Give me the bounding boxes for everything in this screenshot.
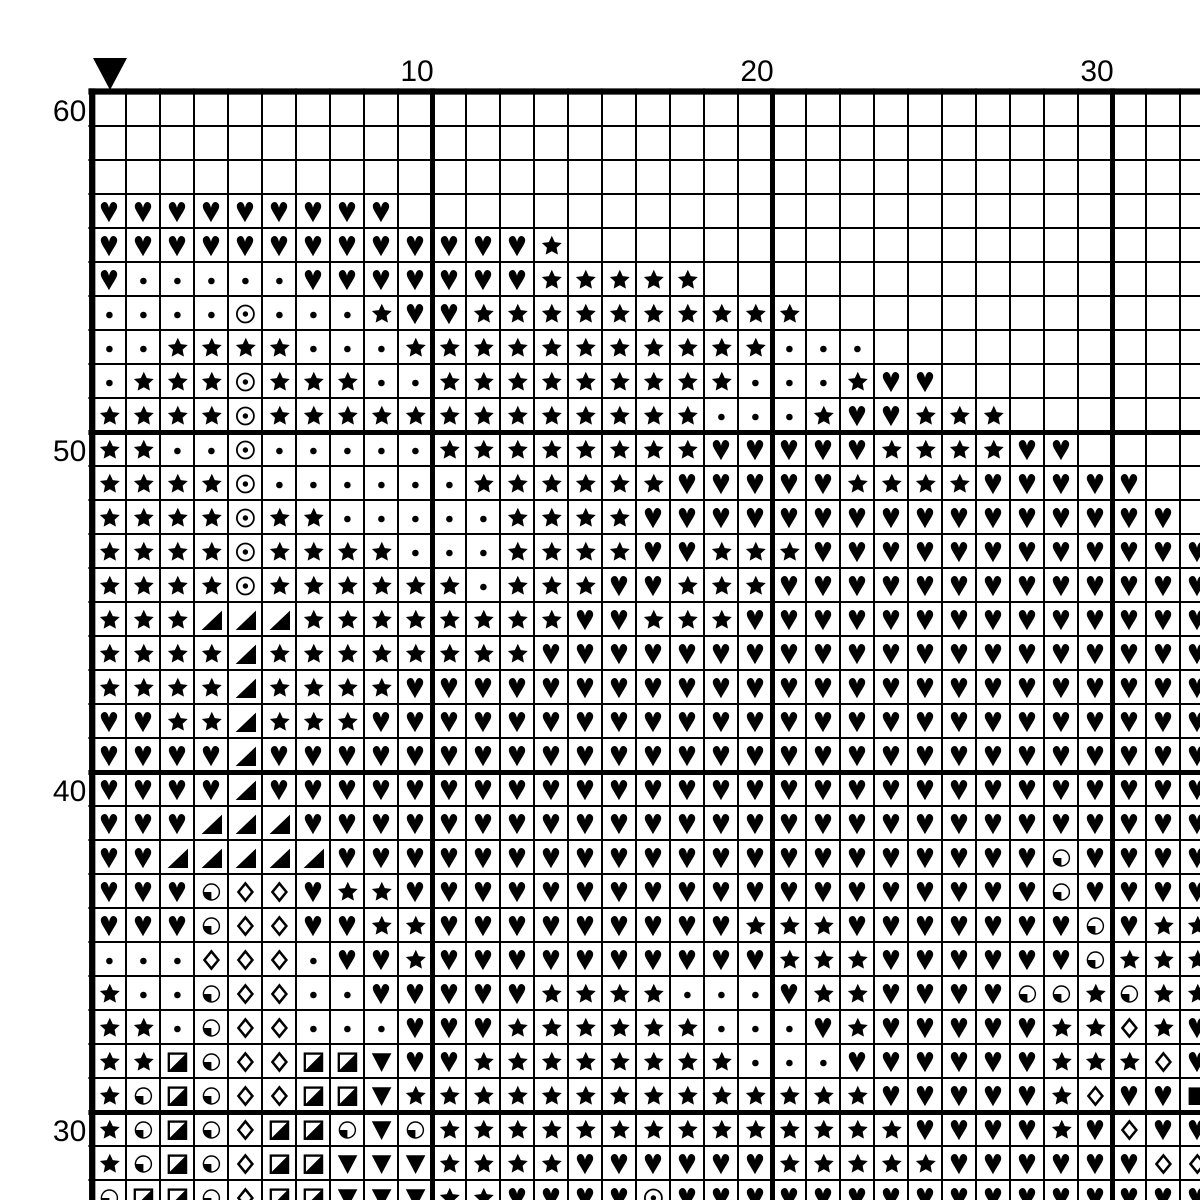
svg-text:10: 10 <box>400 55 433 88</box>
svg-text:40: 40 <box>53 775 86 808</box>
svg-text:30: 30 <box>1080 55 1113 88</box>
svg-text:50: 50 <box>53 435 86 468</box>
svg-text:30: 30 <box>53 1115 86 1148</box>
svg-text:20: 20 <box>740 55 773 88</box>
svg-text:60: 60 <box>53 95 86 128</box>
